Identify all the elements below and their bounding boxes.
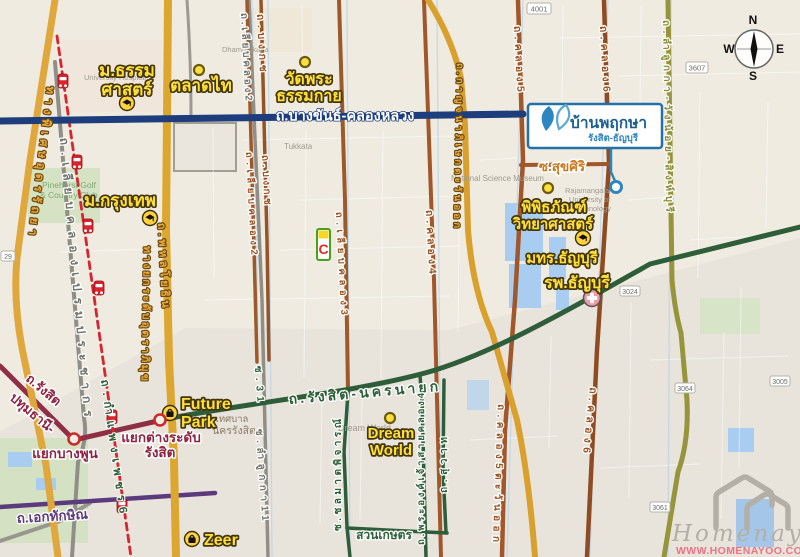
compass-w: W [723,42,735,56]
label-dream-2: World [370,442,412,459]
marker-watphra [300,57,310,67]
label-dream-1: Dream [368,425,415,442]
label-khlong4: ถ.คลอง4 [423,210,438,275]
text-nsm: National Science Museum [451,174,544,183]
badge-3064: 3064 [675,383,695,393]
compass-n: N [749,13,758,27]
marker-taladthai [194,65,204,75]
label-rmutt: มทร.ธัญบุรี [526,250,598,268]
marker-science-museum [543,183,553,193]
callout-subtitle: รังสิต-ธัญบุรี [588,132,639,144]
label-science-1: พิพิธภัณฑ์ [521,198,586,216]
marker-bangkok-univ [143,211,158,226]
label-bangkok-univ: ม.กรุงเทพ [84,191,156,211]
svg-text:3607: 3607 [689,64,706,73]
label-future-1: Future [181,396,231,413]
svg-text:3064: 3064 [677,386,693,393]
label-watphra-1: วัดพระ [285,70,332,88]
callout-location-dot [611,182,622,193]
road-bangkhan-khlongluang [0,114,523,121]
callout-title: บ้านพฤกษา [570,114,647,132]
badge-29: 29 [1,251,15,261]
label-tollway: ทางยกระดับอุตราภิมุข [138,246,153,381]
pruksa-callout: บ้านพฤกษา รังสิต-ธัญบุรี [528,104,662,193]
road-gray-top [187,0,191,114]
text-tukkata: Tukkata [284,142,313,151]
compass-s: S [749,69,757,83]
label-taladthai: ตลาดไท [170,75,232,95]
label-suksiri: ซ.สุขศิริ [539,159,586,175]
text-nakhon-rangsit-2: นครรังสิต [212,425,256,437]
callout-line [611,148,615,181]
label-zeer: Zeer [204,532,238,549]
svg-text:4001: 4001 [531,5,548,14]
label-thammasat-1: ม.ธรรม [99,61,155,80]
marker-rangsit-junction [155,415,166,426]
bigc-letter: C [318,241,328,257]
badge-3005: 3005 [770,376,790,386]
homenayoo-brand: Homenayoo [671,521,800,547]
label-bangkhan: ถ.บางขันธ์-คลองหลวง [276,107,415,125]
label-watphra-2: ธรรมกาย [276,88,342,105]
marker-zeer [185,532,200,547]
label-science-2: วิทยาศาสตร์ [512,215,594,233]
bigc-marker: C [317,229,330,260]
label-chonlamat: ซ.ชลมาตพิจารณ์ [332,418,344,531]
label-rangsit-junction-1: แยกต่างระดับ [121,430,201,445]
marker-thanyaburi-hospital [584,290,601,307]
label-bangphun-junction: แยกบางพูน [32,446,98,462]
label-kanchanaphisek: ถ.กาญจนาภิเษกตะวันออก [451,63,465,228]
text-nakhon-rangsit-1: เทศบาล [216,415,249,425]
label-future-2: Park [181,414,216,431]
svg-text:3061: 3061 [652,505,668,512]
label-suankaset: สวนเกษตร [356,528,412,542]
homenayoo-url: WWW.HOMENAYOO.COM [676,545,800,557]
badge-3061: 3061 [650,502,670,512]
svg-text:29: 29 [4,254,12,261]
svg-text:3005: 3005 [772,379,788,386]
badge-4001: 4001 [527,3,551,14]
marker-dreamworld [385,413,395,423]
label-thanyaburi-hospital: รพ.ธัญบุรี [544,273,610,293]
badge-3024: 3024 [620,286,640,296]
compass-e: E [776,42,784,56]
badge-3607: 3607 [686,62,708,73]
svg-text:3024: 3024 [622,289,638,296]
marker-bangphun-junction [69,434,80,445]
label-rangsit-junction-2: รังสิต [145,445,176,460]
text-rmutt-en-1: Rajamangala [565,186,610,195]
label-thammasat-2: ศาสตร์ [102,79,154,99]
map-image: Tukkata National Science Museum Rajamang… [0,0,800,557]
